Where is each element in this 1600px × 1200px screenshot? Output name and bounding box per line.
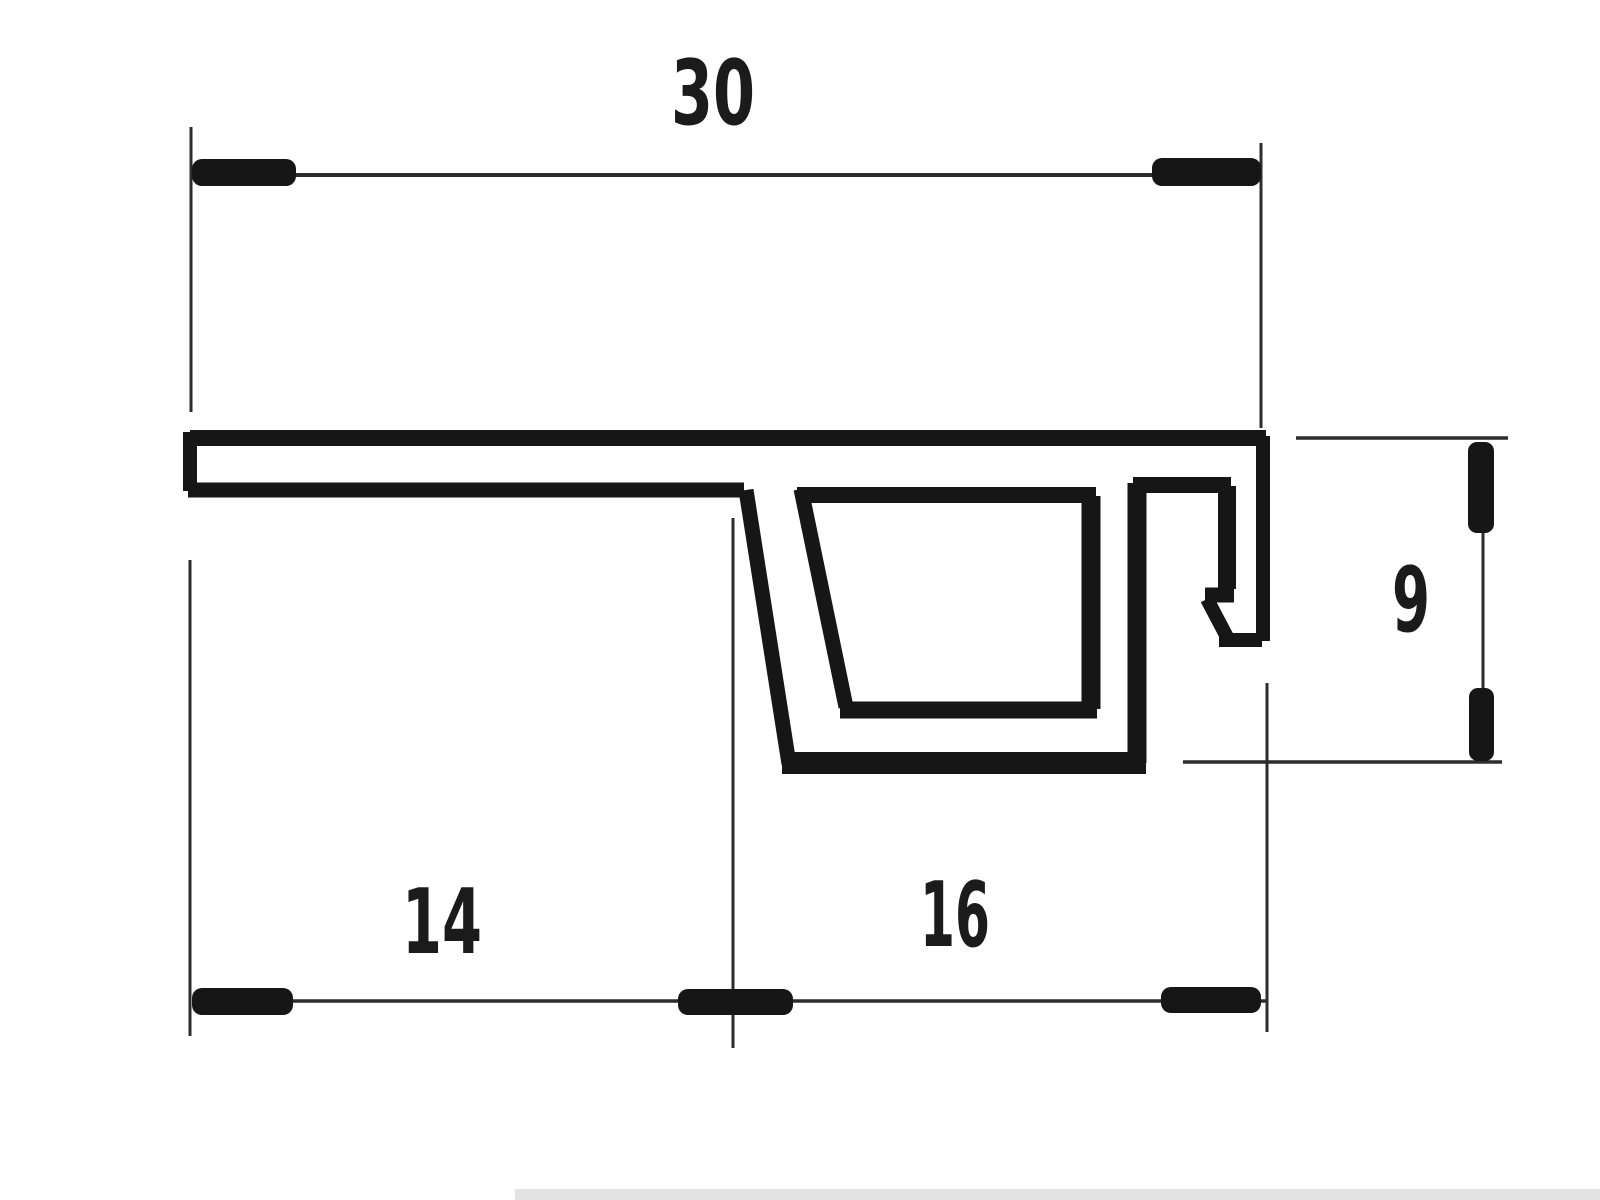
dimension-label-16: 16: [920, 863, 990, 968]
tick-30-left: [192, 159, 296, 186]
hook-barb-diagonal: [1207, 599, 1227, 637]
technical-drawing-page: 3014169: [0, 0, 1600, 1200]
tick-bottom-left: [192, 988, 293, 1015]
tick-9-bottom: [1469, 688, 1494, 761]
tick-bottom-middle: [678, 989, 793, 1015]
tick-30-right: [1152, 158, 1261, 186]
dimension-label-14: 14: [402, 870, 482, 975]
profile-drawing: 3014169: [0, 0, 1600, 1200]
dimension-label-30: 30: [671, 41, 755, 146]
channel-left-wall-inner: [801, 489, 846, 707]
tick-bottom-right: [1161, 987, 1261, 1013]
tick-9-top: [1468, 442, 1494, 533]
dimension-label-9: 9: [1392, 548, 1430, 653]
scan-shadow: [515, 1189, 1600, 1200]
channel-left-wall-outer: [746, 490, 789, 764]
